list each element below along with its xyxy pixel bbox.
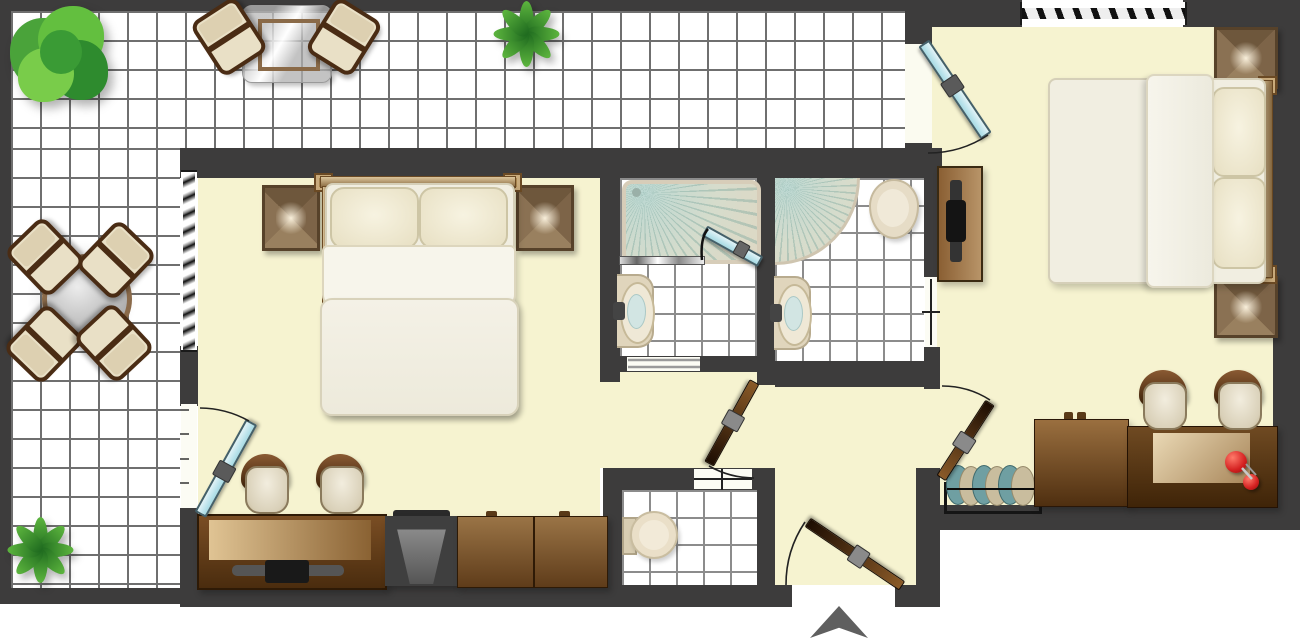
dresser — [1034, 419, 1129, 507]
folded-blanket — [1146, 74, 1214, 288]
wall-terrace-north — [0, 0, 932, 11]
wall-terrace-door-jamb-bottom — [905, 143, 932, 173]
desk — [1127, 426, 1278, 508]
duvet — [320, 298, 519, 416]
left-bedroom-hall-passage — [600, 382, 620, 468]
wall-south-east — [895, 585, 940, 607]
shower-glass-screen — [619, 256, 705, 265]
wall-left-bedroom-west-low — [180, 508, 198, 590]
desk-top-panel — [209, 520, 371, 560]
pillow — [1212, 87, 1266, 177]
left-bedroom-terrace-doorway — [181, 404, 197, 508]
wall-shower-room-2-east-b — [924, 347, 940, 389]
media-box — [265, 560, 309, 583]
wall-shower-room-2-east-a — [924, 178, 938, 277]
pillow — [1212, 177, 1266, 269]
radiator-section — [1011, 466, 1035, 506]
wall-terrace-south — [0, 588, 194, 604]
toilet-bowl — [877, 189, 909, 227]
shrub-plant — [8, 6, 114, 110]
fern-plant-north — [494, 4, 558, 64]
fern-plant-south — [8, 516, 72, 584]
wall-rooms-north — [180, 148, 942, 178]
wall-left-bedroom-west-mid — [180, 346, 198, 406]
bedside-table — [1214, 276, 1278, 338]
bedside-table — [516, 185, 574, 251]
right-bedroom-hall-doorway — [924, 389, 940, 468]
tv-stand — [946, 200, 966, 242]
left-bedroom-window — [181, 170, 197, 352]
floor-plan — [0, 0, 1300, 644]
entrance-arrow-marker — [810, 606, 868, 638]
shower-room-2-sliding-doorway — [925, 277, 937, 347]
tv-unit-inset — [395, 526, 448, 584]
tv-seat-unit — [385, 516, 458, 586]
tv-cabinet — [937, 166, 983, 282]
shower-room-1-threshold — [627, 357, 700, 371]
desk-console — [197, 514, 387, 590]
red-desk-object-small — [1243, 474, 1259, 490]
window-blind-pattern — [183, 172, 195, 350]
wc-doorway — [694, 469, 752, 489]
pillow — [330, 187, 419, 249]
toilet-bowl — [639, 520, 669, 550]
wall-shower-room-2-south — [775, 361, 939, 387]
window-blind-pattern — [1022, 8, 1185, 19]
wall-hall-east — [916, 468, 940, 590]
shower-head — [632, 188, 641, 197]
wall-terrace-door-jamb-top — [905, 0, 932, 44]
wash-basin — [617, 274, 654, 348]
wall-wc-east — [757, 468, 775, 590]
low-cabinet — [457, 516, 608, 588]
cabinet-door-gap — [533, 517, 535, 587]
terrace-tiles-top — [11, 11, 905, 148]
red-desk-object-large — [1225, 451, 1247, 473]
right-bedroom-window — [1020, 2, 1187, 25]
desk-chair — [313, 454, 367, 514]
desk-chair — [238, 454, 292, 514]
pillow — [419, 187, 508, 249]
wall-right-bedroom-north-a — [930, 0, 1022, 27]
bedside-table — [262, 185, 320, 251]
desk-chair — [1211, 370, 1265, 430]
wash-basin — [774, 276, 811, 350]
toilet — [630, 511, 678, 559]
desk-chair — [1136, 370, 1190, 430]
